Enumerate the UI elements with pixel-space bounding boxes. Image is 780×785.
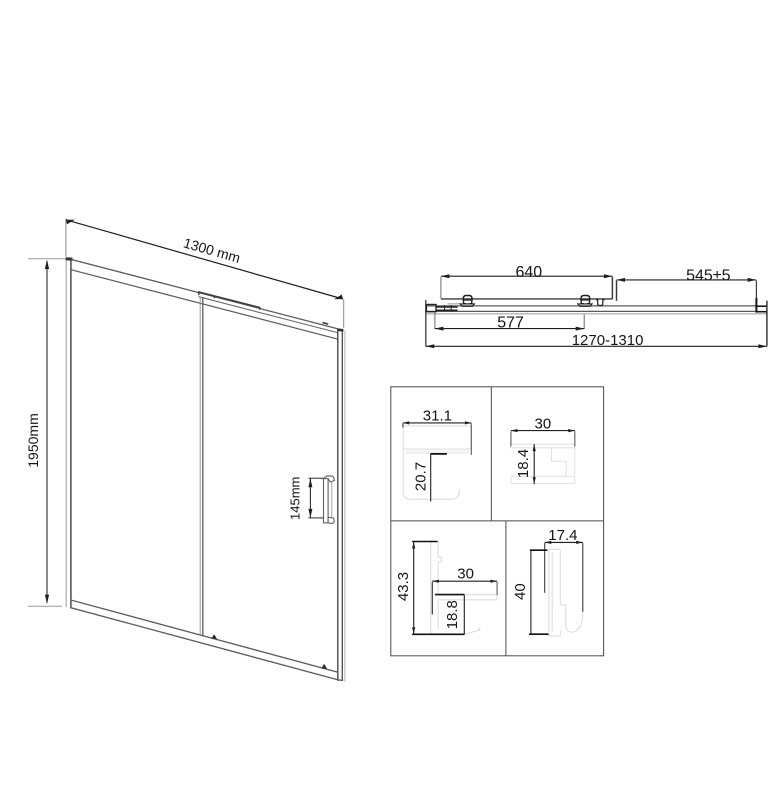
svg-text:1270-1310: 1270-1310 (572, 332, 644, 349)
svg-text:18.8: 18.8 (444, 600, 461, 629)
svg-text:30: 30 (457, 566, 474, 583)
svg-text:545±5: 545±5 (686, 268, 730, 285)
svg-text:1950mm: 1950mm (25, 413, 41, 467)
svg-text:30: 30 (535, 415, 552, 432)
svg-text:145mm: 145mm (287, 477, 302, 520)
svg-text:43.3: 43.3 (395, 572, 412, 601)
svg-text:640: 640 (515, 264, 542, 281)
svg-text:31.1: 31.1 (423, 407, 452, 424)
svg-text:20.7: 20.7 (413, 462, 430, 491)
svg-text:18.4: 18.4 (515, 449, 532, 478)
svg-text:17.4: 17.4 (548, 527, 577, 544)
svg-text:577: 577 (497, 314, 524, 331)
svg-text:40: 40 (512, 583, 529, 600)
